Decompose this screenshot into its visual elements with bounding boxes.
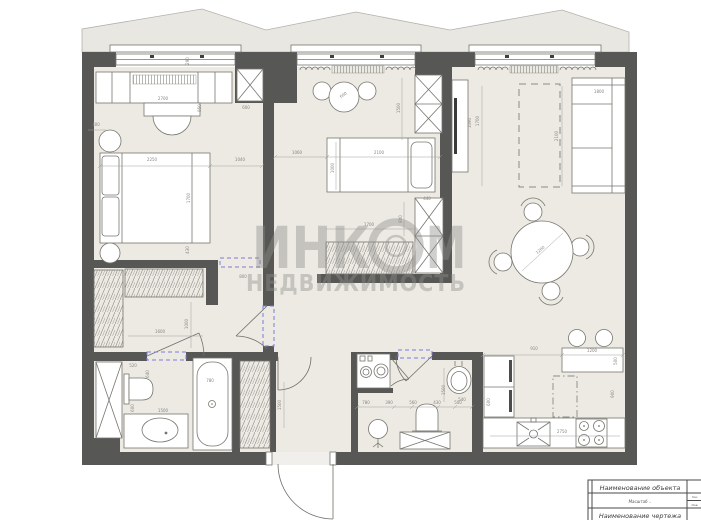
window-sill	[110, 45, 241, 52]
dimension-label: 780	[362, 400, 370, 405]
dimension-label: 950	[197, 104, 202, 112]
tv-unit	[452, 80, 468, 172]
dimension-label: 1000	[184, 318, 189, 329]
dimension-label: 500	[613, 357, 618, 365]
entrance-door	[266, 452, 336, 519]
dimension-label: 540	[458, 397, 466, 402]
dimension-label: 1500	[158, 408, 169, 413]
bar-stool	[596, 330, 613, 347]
dimension-label: 390	[385, 400, 393, 405]
dimension-label: 2100	[374, 150, 385, 155]
hall-closet	[94, 270, 123, 347]
kids-wardrobe	[415, 75, 442, 133]
vanity-sink	[124, 414, 188, 448]
bathtub	[193, 358, 232, 450]
dimension-label: 440	[423, 196, 431, 201]
dimension-label: 780	[206, 378, 214, 383]
dimension-label: 1700	[186, 192, 191, 203]
dimension-label: 1060	[292, 150, 303, 155]
dimension-label: 1800	[594, 89, 605, 94]
dimension-label: 600	[130, 404, 135, 412]
title-block-drawing-row: Наименование чертежа	[599, 512, 681, 520]
corridor-closet	[240, 361, 270, 448]
dimension-label: 1500	[277, 399, 282, 410]
nightstand	[100, 243, 120, 263]
fridge	[484, 356, 514, 417]
windows	[110, 45, 601, 65]
dimension-label: 600	[242, 105, 250, 110]
title-block-scale-row: Масштаб ..	[629, 499, 652, 504]
dimension-label: 1000	[330, 162, 335, 173]
title-block: Наименование объекта Масштаб .. Зак. Инв…	[588, 480, 701, 520]
title-block-object-row: Наименование объекта	[600, 484, 681, 492]
dimension-label: 400	[92, 122, 100, 127]
dimension-label: 2700	[158, 96, 169, 101]
curtain-rail	[332, 66, 384, 73]
dimension-label: 900	[610, 390, 615, 398]
dimension-label: 290	[185, 57, 190, 65]
dimension-label: 1600	[155, 329, 166, 334]
watermark: ИНК М НЕДВИЖИМОСТЬ	[246, 214, 466, 297]
dimension-label: 1700	[475, 115, 480, 126]
floor-plan-page: 2902700400950600225010401700430106021001…	[0, 0, 701, 520]
hall-closet	[125, 269, 203, 297]
shaft-top	[237, 69, 263, 101]
window-sill	[291, 45, 421, 52]
dimension-label: 1040	[235, 157, 246, 162]
dimension-label: 910	[530, 346, 538, 351]
kids-bed	[327, 138, 435, 192]
washer-dryer	[357, 354, 390, 388]
dimension-label: 560	[409, 400, 417, 405]
dimension-label: 640	[145, 370, 150, 378]
dimension-label: 1090	[467, 117, 472, 128]
shaft-bathroom	[96, 362, 122, 438]
dimension-label: 430	[433, 400, 441, 405]
double-bed	[100, 153, 210, 243]
kitchen-counter	[483, 418, 625, 448]
window-sill	[469, 45, 601, 52]
dimension-label: 1500	[441, 384, 446, 395]
dimension-label: 430	[185, 246, 190, 254]
dimension-label: 1500	[396, 102, 401, 113]
dimension-label: 600	[486, 398, 491, 406]
title-block-side-bottom: Инв.	[692, 503, 699, 507]
dimension-label: 2100	[554, 130, 559, 141]
dimension-label: 2750	[557, 429, 568, 434]
dimension-label: 520	[129, 363, 137, 368]
nightstand	[99, 130, 121, 152]
dimension-label: 2250	[147, 157, 158, 162]
dimension-label: 1200	[587, 348, 598, 353]
dining-table	[511, 221, 573, 283]
curtain-rail	[510, 66, 558, 73]
bar-stool	[569, 330, 586, 347]
floor-plan-drawing: 2902700400950600225010401700430106021001…	[0, 0, 701, 520]
watermark-subtitle: НЕДВИЖИМОСТЬ	[246, 271, 466, 297]
sofa	[572, 78, 625, 193]
shower-tray	[400, 432, 450, 449]
title-block-side-top: Зак.	[692, 495, 699, 499]
